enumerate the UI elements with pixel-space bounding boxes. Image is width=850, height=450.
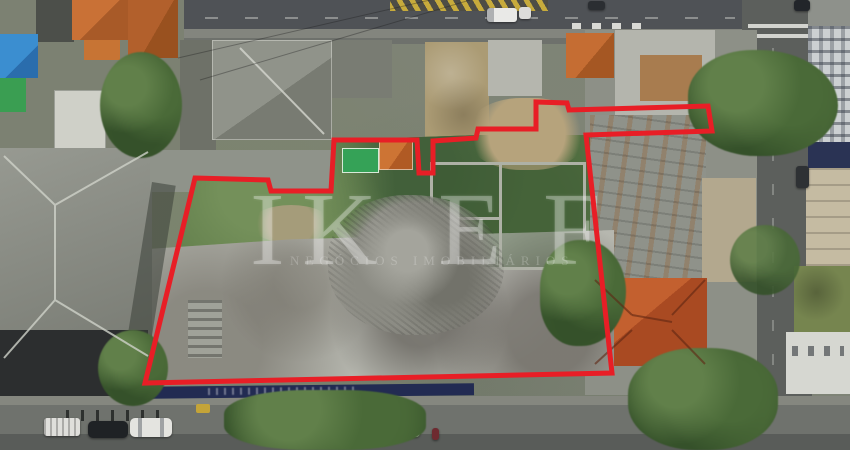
- white-building: [786, 332, 850, 394]
- motorcycle: [432, 428, 439, 440]
- utility-cart: [44, 418, 80, 436]
- dirt-patch: [468, 98, 586, 170]
- white-building: [54, 90, 106, 152]
- blue-roof-house: [0, 34, 38, 78]
- light-roof: [488, 40, 542, 96]
- tree-canopy: [98, 330, 168, 406]
- orange-tile-roof: [72, 0, 128, 40]
- window-row: [792, 346, 844, 356]
- gray-roof: [180, 40, 216, 162]
- gray-roof: [332, 40, 392, 98]
- orange-tile-roof: [566, 33, 614, 78]
- dark-car: [588, 1, 605, 10]
- watermark-letter: I: [250, 178, 285, 282]
- tree-canopy: [224, 390, 426, 450]
- avenue-lane-markings: [205, 17, 735, 19]
- beige-building: [806, 168, 850, 266]
- aerial-photo: I K E F NEGÓCIOS IMOBILIÁRIOS: [0, 0, 850, 450]
- watermark-subtitle: NEGÓCIOS IMOBILIÁRIOS: [290, 253, 575, 269]
- zebra-crosswalk: [748, 24, 808, 42]
- roof: [808, 0, 850, 26]
- dark-roof: [36, 0, 74, 42]
- navy-facade: [808, 142, 850, 168]
- dark-car: [794, 0, 810, 11]
- large-gable-roof: [212, 40, 332, 140]
- orange-roof-building: [379, 139, 413, 170]
- box-truck: [487, 8, 517, 22]
- black-car: [88, 421, 128, 438]
- tree-canopy: [100, 52, 182, 158]
- orange-tile-roof: [84, 40, 120, 60]
- tree-canopy: [730, 225, 800, 295]
- concrete-steps: [188, 300, 222, 358]
- green-house: [0, 78, 26, 112]
- white-suv: [130, 418, 172, 437]
- mossy-flat-roof: [794, 266, 850, 332]
- yellow-road-mark: [196, 404, 210, 413]
- orange-tile-roof: [128, 0, 178, 58]
- green-roof-building: [342, 148, 379, 173]
- parked-dark-car: [796, 166, 809, 188]
- white-van: [519, 7, 531, 19]
- tree-canopy: [688, 50, 838, 156]
- tree-canopy: [628, 348, 778, 450]
- white-road-arrows: [572, 23, 642, 29]
